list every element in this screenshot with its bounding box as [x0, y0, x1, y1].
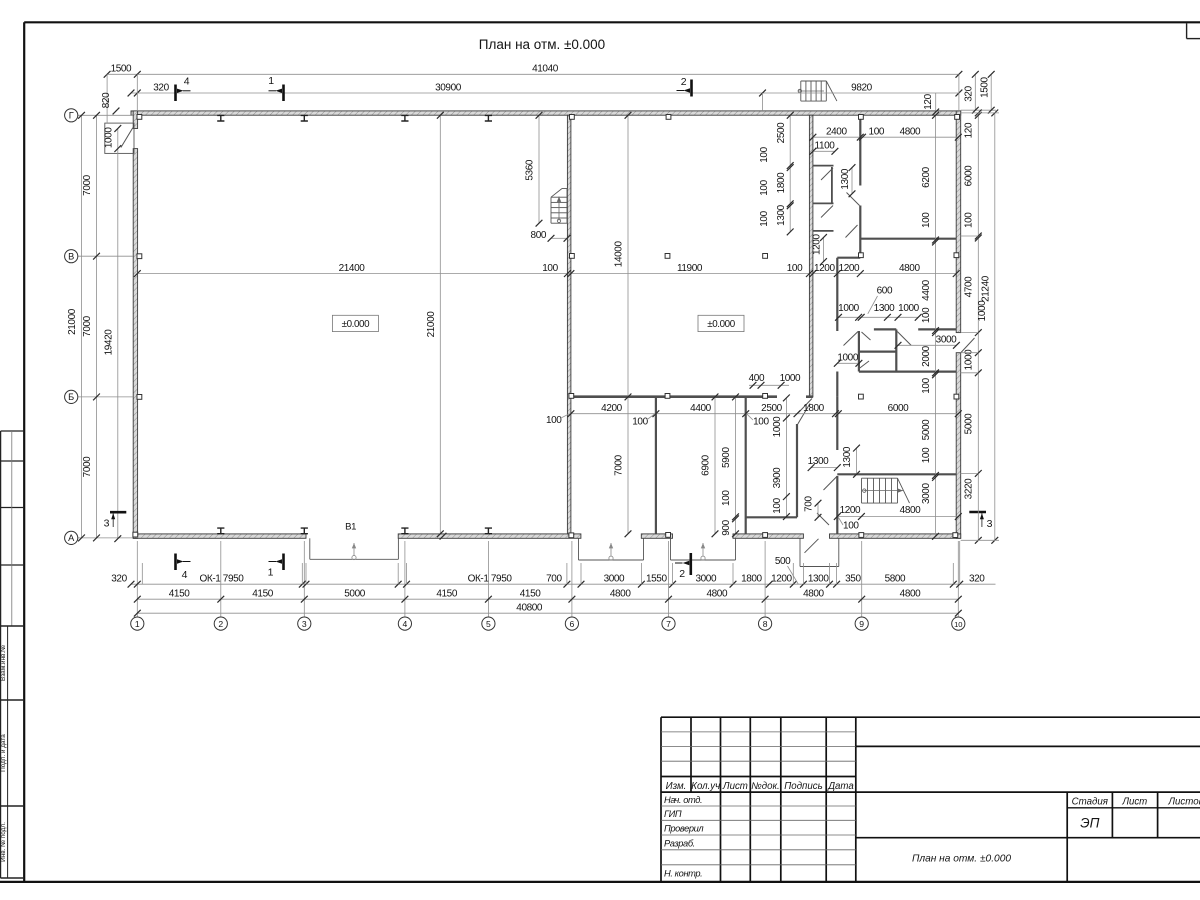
svg-text:7: 7: [666, 619, 671, 629]
svg-text:1000: 1000: [838, 303, 859, 314]
svg-text:№док.: №док.: [751, 781, 780, 792]
svg-text:900: 900: [721, 519, 732, 535]
svg-text:1: 1: [135, 619, 140, 629]
svg-text:100: 100: [721, 490, 732, 506]
svg-text:ОК-1 7950: ОК-1 7950: [468, 574, 513, 585]
svg-text:40800: 40800: [516, 603, 543, 614]
svg-text:600: 600: [877, 285, 893, 296]
svg-text:1800: 1800: [741, 574, 762, 585]
svg-text:21400: 21400: [339, 263, 366, 274]
svg-text:1: 1: [268, 566, 274, 578]
svg-text:8: 8: [763, 619, 768, 629]
svg-text:1300: 1300: [874, 303, 895, 314]
svg-text:100: 100: [921, 447, 932, 463]
svg-text:2000: 2000: [921, 345, 932, 366]
svg-text:А: А: [68, 533, 75, 543]
svg-text:3000: 3000: [604, 574, 625, 585]
svg-text:4800: 4800: [900, 505, 921, 516]
svg-text:Стадия: Стадия: [1072, 797, 1108, 808]
svg-text:Г: Г: [69, 111, 74, 121]
svg-text:Дата: Дата: [827, 781, 854, 792]
svg-text:2: 2: [679, 568, 685, 580]
svg-text:4150: 4150: [169, 589, 190, 600]
svg-text:19420: 19420: [103, 329, 114, 356]
svg-text:1100: 1100: [815, 141, 836, 152]
svg-text:3: 3: [302, 619, 307, 629]
svg-text:4800: 4800: [900, 127, 921, 138]
svg-text:Инв. № подл.: Инв. № подл.: [0, 822, 7, 862]
svg-text:3000: 3000: [921, 483, 932, 504]
svg-text:Нач. отд.: Нач. отд.: [664, 795, 702, 805]
svg-text:7000: 7000: [614, 454, 625, 475]
svg-text:700: 700: [546, 574, 562, 585]
svg-text:4800: 4800: [610, 589, 631, 600]
svg-text:4800: 4800: [900, 589, 921, 600]
svg-text:1500: 1500: [980, 76, 991, 97]
svg-text:Лист: Лист: [1121, 797, 1147, 808]
svg-text:100: 100: [964, 212, 975, 228]
svg-text:±0.000: ±0.000: [707, 319, 735, 330]
svg-text:Разраб.: Разраб.: [664, 838, 695, 848]
svg-text:1300: 1300: [808, 456, 829, 467]
svg-text:4700: 4700: [964, 276, 975, 297]
svg-text:1000: 1000: [977, 300, 988, 321]
svg-text:1200: 1200: [771, 574, 792, 585]
svg-text:41040: 41040: [532, 64, 559, 75]
svg-text:Н. контр.: Н. контр.: [664, 869, 702, 879]
svg-text:5000: 5000: [964, 413, 975, 434]
svg-text:В1: В1: [345, 521, 356, 532]
svg-text:4: 4: [403, 619, 408, 629]
svg-text:1000: 1000: [780, 373, 801, 384]
svg-text:100: 100: [753, 417, 769, 428]
svg-text:Листов: Листов: [1167, 797, 1200, 808]
svg-text:1200: 1200: [811, 234, 822, 255]
svg-text:1300: 1300: [842, 446, 853, 467]
svg-text:1200: 1200: [839, 263, 860, 274]
svg-text:План на отм. ±0.000: План на отм. ±0.000: [479, 37, 605, 52]
svg-text:100: 100: [542, 263, 558, 274]
svg-text:320: 320: [111, 574, 127, 585]
svg-text:120: 120: [923, 93, 934, 109]
svg-text:100: 100: [869, 127, 885, 138]
svg-text:100: 100: [759, 179, 770, 195]
svg-text:1000: 1000: [837, 353, 858, 364]
svg-text:5000: 5000: [344, 589, 365, 600]
svg-text:800: 800: [531, 230, 547, 241]
svg-text:21240: 21240: [980, 275, 991, 302]
svg-text:4800: 4800: [706, 589, 727, 600]
svg-text:320: 320: [969, 574, 985, 585]
svg-text:1: 1: [268, 75, 274, 87]
svg-text:4150: 4150: [252, 589, 273, 600]
svg-text:820: 820: [101, 92, 112, 108]
svg-text:100: 100: [921, 212, 932, 228]
svg-text:10: 10: [954, 620, 962, 629]
svg-text:Взам.инв.№: Взам.инв.№: [0, 645, 7, 681]
svg-text:В: В: [68, 251, 74, 261]
svg-text:500: 500: [775, 556, 791, 567]
svg-text:1000: 1000: [103, 127, 114, 148]
svg-text:5000: 5000: [921, 419, 932, 440]
svg-text:11900: 11900: [677, 263, 703, 274]
svg-text:6000: 6000: [964, 165, 975, 186]
svg-text:3: 3: [987, 518, 993, 530]
svg-text:6900: 6900: [701, 454, 712, 475]
svg-text:Лист: Лист: [722, 781, 748, 792]
svg-text:4400: 4400: [690, 403, 711, 414]
svg-text:3220: 3220: [964, 478, 975, 499]
svg-text:5: 5: [486, 619, 491, 629]
svg-text:ОК-1 7950: ОК-1 7950: [200, 574, 245, 585]
svg-text:100: 100: [787, 263, 803, 274]
svg-text:6000: 6000: [888, 403, 909, 414]
svg-text:21000: 21000: [426, 311, 437, 338]
svg-text:1000: 1000: [964, 349, 975, 370]
svg-text:4800: 4800: [899, 263, 920, 274]
svg-text:320: 320: [153, 82, 169, 93]
svg-text:4400: 4400: [921, 279, 932, 300]
svg-text:100: 100: [843, 521, 859, 532]
svg-text:100: 100: [772, 497, 783, 513]
svg-text:Б: Б: [68, 392, 74, 402]
svg-text:Кол.уч: Кол.уч: [691, 781, 720, 792]
svg-text:4150: 4150: [436, 589, 457, 600]
svg-text:1200: 1200: [840, 505, 861, 516]
svg-text:120: 120: [964, 122, 975, 138]
svg-text:6200: 6200: [921, 166, 932, 187]
svg-text:100: 100: [921, 377, 932, 393]
svg-text:30900: 30900: [435, 82, 462, 93]
svg-text:7000: 7000: [82, 174, 93, 195]
svg-text:3900: 3900: [772, 467, 783, 488]
svg-text:±0.000: ±0.000: [342, 319, 370, 330]
svg-text:2400: 2400: [826, 127, 847, 138]
svg-text:2500: 2500: [761, 403, 782, 414]
svg-text:ЭП: ЭП: [1080, 816, 1099, 831]
svg-text:1800: 1800: [803, 403, 824, 414]
svg-text:4200: 4200: [601, 403, 622, 414]
svg-text:100: 100: [632, 417, 648, 428]
svg-text:100: 100: [759, 146, 770, 162]
svg-text:100: 100: [921, 307, 932, 323]
svg-text:1500: 1500: [111, 64, 132, 75]
svg-text:100: 100: [759, 210, 770, 226]
svg-text:700: 700: [804, 496, 815, 512]
svg-text:4150: 4150: [520, 589, 541, 600]
svg-text:2: 2: [681, 76, 687, 88]
svg-text:План на отм. ±0.000: План на отм. ±0.000: [912, 854, 1011, 865]
svg-text:1300: 1300: [776, 204, 787, 225]
svg-text:4: 4: [184, 76, 190, 88]
svg-text:100: 100: [546, 415, 562, 426]
svg-text:4800: 4800: [803, 589, 824, 600]
svg-text:350: 350: [845, 574, 861, 585]
svg-text:9: 9: [859, 619, 864, 629]
svg-text:1800: 1800: [776, 172, 787, 193]
svg-text:1000: 1000: [772, 416, 783, 437]
svg-text:4: 4: [182, 569, 188, 581]
svg-text:14000: 14000: [614, 241, 625, 268]
svg-text:21000: 21000: [67, 308, 78, 335]
svg-text:1300: 1300: [840, 168, 851, 189]
svg-text:6: 6: [570, 619, 575, 629]
svg-text:3000: 3000: [695, 574, 716, 585]
svg-text:7000: 7000: [82, 456, 93, 477]
svg-text:400: 400: [749, 373, 765, 384]
svg-text:5360: 5360: [525, 159, 536, 180]
svg-text:320: 320: [964, 85, 975, 101]
svg-text:Изм.: Изм.: [666, 781, 687, 792]
svg-text:1550: 1550: [646, 574, 667, 585]
svg-text:Подпись: Подпись: [784, 781, 822, 792]
svg-text:5900: 5900: [721, 447, 732, 468]
svg-text:1300: 1300: [808, 574, 829, 585]
svg-text:1000: 1000: [898, 303, 919, 314]
svg-text:5800: 5800: [885, 574, 906, 585]
svg-text:ГИП: ГИП: [664, 809, 682, 819]
svg-text:3000: 3000: [936, 334, 957, 345]
svg-text:7000: 7000: [82, 315, 93, 336]
svg-text:9820: 9820: [851, 82, 872, 93]
svg-text:2: 2: [218, 619, 223, 629]
svg-text:1200: 1200: [814, 263, 835, 274]
svg-text:2500: 2500: [776, 122, 787, 143]
svg-text:Проверил: Проверил: [664, 824, 704, 834]
svg-text:Подп. и дата: Подп. и дата: [0, 734, 7, 772]
svg-text:3: 3: [104, 518, 110, 530]
